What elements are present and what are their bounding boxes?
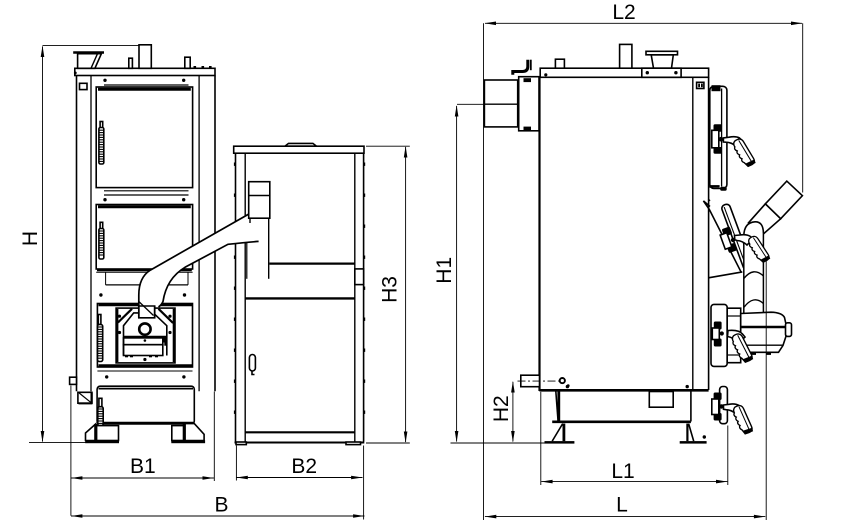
svg-text:H1: H1 [433,257,456,284]
svg-text:H: H [19,231,42,246]
svg-text:L1: L1 [611,460,634,483]
svg-text:H3: H3 [379,276,402,303]
svg-text:B2: B2 [291,455,317,478]
svg-text:H2: H2 [490,395,513,422]
svg-text:B1: B1 [130,455,156,478]
svg-text:L: L [616,494,628,517]
svg-text:B: B [214,494,228,517]
svg-text:L2: L2 [612,1,635,24]
